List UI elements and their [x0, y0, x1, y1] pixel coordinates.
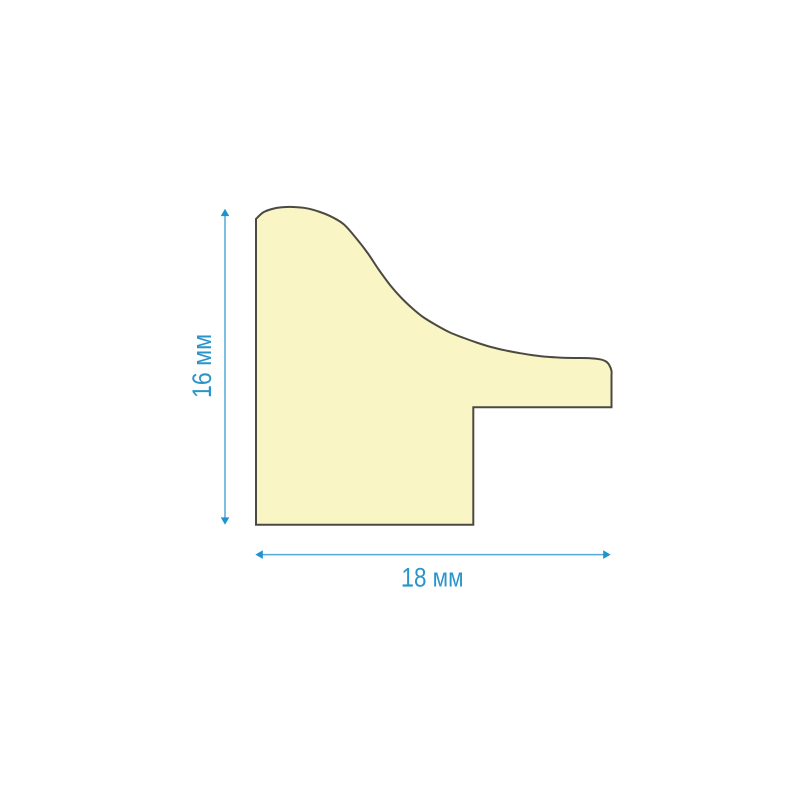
svg-text:16 мм: 16 мм	[187, 334, 217, 398]
svg-text:18 мм: 18 мм	[402, 563, 464, 593]
